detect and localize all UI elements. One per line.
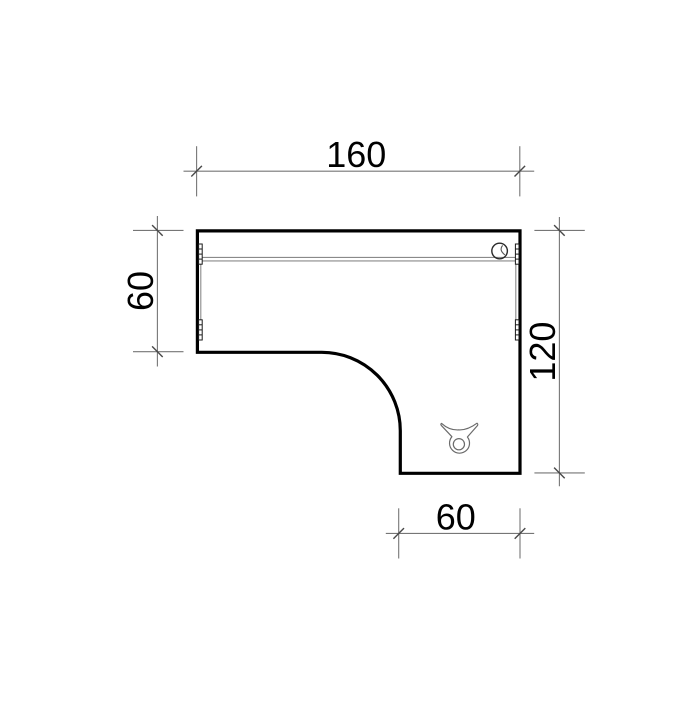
svg-text:60: 60 [120, 271, 161, 311]
svg-text:160: 160 [326, 134, 386, 175]
svg-text:120: 120 [522, 322, 563, 382]
svg-text:60: 60 [436, 497, 476, 538]
